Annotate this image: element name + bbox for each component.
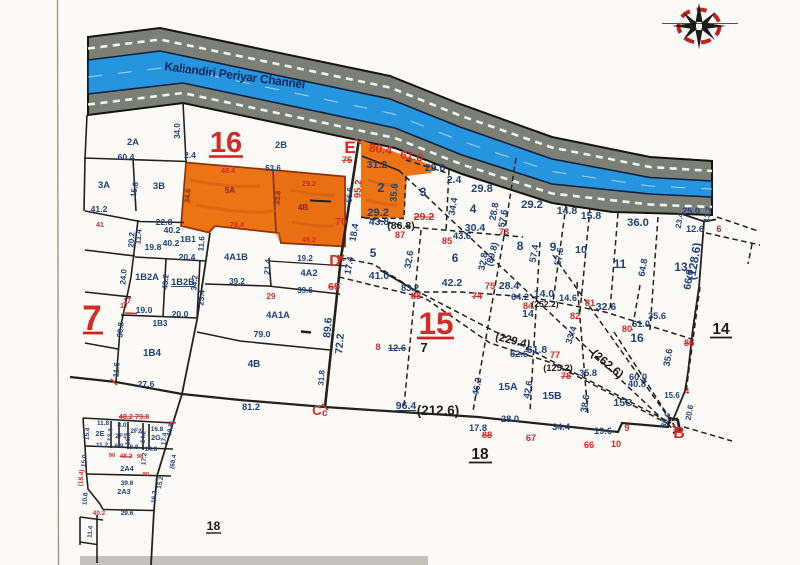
svg-text:31.8: 31.8 — [316, 369, 326, 386]
svg-text:2: 2 — [377, 180, 384, 195]
svg-text:5A: 5A — [225, 186, 235, 195]
svg-text:75: 75 — [342, 155, 352, 165]
svg-text:3: 3 — [420, 185, 427, 199]
svg-text:2A: 2A — [127, 137, 139, 147]
svg-text:39.6: 39.6 — [121, 480, 134, 487]
svg-text:29.6: 29.6 — [121, 510, 134, 517]
svg-text:53.6: 53.6 — [265, 164, 281, 173]
svg-text:16: 16 — [210, 127, 242, 159]
svg-text:29.6: 29.6 — [425, 162, 446, 174]
svg-text:34.4: 34.4 — [552, 422, 571, 432]
svg-text:61.8: 61.8 — [527, 344, 548, 356]
svg-text:15.4: 15.4 — [83, 427, 91, 440]
svg-text:88: 88 — [411, 291, 421, 301]
svg-text:48.4: 48.4 — [221, 166, 236, 175]
svg-text:6: 6 — [716, 224, 721, 234]
svg-text:85: 85 — [442, 236, 452, 246]
svg-text:11: 11 — [614, 257, 627, 271]
svg-text:30.8: 30.8 — [115, 321, 125, 338]
svg-text:14: 14 — [522, 308, 534, 320]
svg-text:88: 88 — [482, 430, 492, 440]
svg-text:19.2: 19.2 — [297, 254, 313, 263]
svg-text:43.2: 43.2 — [160, 273, 170, 290]
svg-text:2.4: 2.4 — [447, 174, 462, 186]
svg-text:13.4: 13.4 — [106, 428, 114, 441]
svg-text:85: 85 — [684, 338, 694, 348]
svg-text:35.8: 35.8 — [579, 368, 597, 378]
svg-text:78.4: 78.4 — [230, 220, 245, 229]
svg-text:2B: 2B — [275, 140, 287, 150]
svg-text:17: 17 — [123, 296, 131, 305]
svg-text:11.4: 11.4 — [86, 525, 94, 538]
svg-text:39.6: 39.6 — [297, 286, 313, 295]
svg-text:66: 66 — [584, 440, 594, 450]
svg-text:60.4: 60.4 — [118, 152, 135, 162]
svg-text:29: 29 — [267, 292, 276, 301]
svg-text:89.6: 89.6 — [321, 317, 335, 339]
svg-text:29.8: 29.8 — [471, 183, 493, 195]
svg-text:81.2: 81.2 — [242, 402, 260, 412]
svg-text:24.0: 24.0 — [118, 268, 128, 285]
svg-text:43.8: 43.8 — [369, 216, 390, 228]
svg-text:1B3: 1B3 — [153, 319, 168, 328]
svg-text:48.2: 48.2 — [120, 453, 133, 460]
svg-text:8: 8 — [375, 342, 380, 352]
svg-text:14: 14 — [712, 321, 730, 338]
svg-text:34.2: 34.2 — [189, 274, 199, 291]
svg-text:31.2: 31.2 — [367, 159, 388, 171]
svg-text:32.6: 32.6 — [596, 301, 617, 313]
svg-text:6: 6 — [452, 251, 459, 265]
svg-text:70: 70 — [335, 216, 347, 228]
svg-text:43.6: 43.6 — [453, 231, 471, 241]
svg-text:c: c — [322, 408, 328, 419]
svg-text:3B: 3B — [153, 181, 165, 191]
svg-text:2G: 2G — [151, 433, 161, 442]
svg-text:40.8: 40.8 — [628, 379, 646, 389]
svg-text:73: 73 — [499, 227, 509, 237]
svg-text:21.4: 21.4 — [262, 258, 272, 275]
svg-text:(212.6): (212.6) — [417, 403, 459, 418]
svg-text:(18.4): (18.4) — [77, 469, 85, 486]
svg-text:14.8: 14.8 — [557, 205, 578, 217]
svg-text:4: 4 — [470, 202, 477, 216]
svg-text:4A1A: 4A1A — [266, 310, 290, 320]
svg-text:14.8: 14.8 — [145, 446, 158, 453]
svg-text:9: 9 — [624, 423, 629, 433]
svg-text:79.0: 79.0 — [254, 329, 271, 339]
svg-text:15B: 15B — [542, 390, 562, 402]
svg-text:41: 41 — [96, 220, 104, 229]
svg-text:15.8: 15.8 — [581, 210, 602, 222]
svg-text:19.6: 19.6 — [594, 426, 612, 436]
svg-text:C: C — [312, 403, 322, 418]
svg-text:34.6: 34.6 — [182, 188, 192, 203]
svg-text:39.2: 39.2 — [229, 277, 245, 286]
svg-text:19.8: 19.8 — [145, 242, 162, 252]
svg-text:29.2: 29.2 — [414, 211, 435, 223]
svg-text:1B1: 1B1 — [180, 234, 196, 244]
svg-text:11.6: 11.6 — [111, 361, 121, 377]
svg-text:18: 18 — [471, 446, 489, 463]
svg-text:B: B — [673, 425, 685, 442]
svg-text:10: 10 — [611, 439, 621, 449]
svg-text:4A1B: 4A1B — [224, 252, 248, 262]
svg-text:20.4: 20.4 — [179, 252, 196, 262]
svg-text:10: 10 — [575, 244, 587, 256]
svg-text:77: 77 — [550, 350, 560, 360]
svg-text:82: 82 — [570, 311, 580, 321]
svg-text:11.2: 11.2 — [96, 442, 109, 449]
svg-text:96.4: 96.4 — [396, 400, 417, 412]
svg-text:15C: 15C — [613, 397, 633, 409]
svg-text:12.6: 12.6 — [686, 224, 704, 234]
svg-text:8: 8 — [517, 239, 524, 253]
svg-text:1B2A: 1B2A — [135, 272, 159, 282]
svg-text:17.2: 17.2 — [140, 452, 148, 465]
svg-text:28.4: 28.4 — [499, 280, 520, 292]
svg-text:2A4: 2A4 — [120, 464, 134, 473]
svg-text:16: 16 — [630, 331, 644, 345]
svg-text:46.2: 46.2 — [302, 235, 316, 244]
svg-text:87: 87 — [395, 230, 405, 240]
svg-text:48.2 79.8: 48.2 79.8 — [119, 412, 149, 421]
svg-text:90: 90 — [109, 453, 116, 459]
svg-text:1B4: 1B4 — [143, 348, 162, 359]
svg-text:72.2: 72.2 — [333, 333, 347, 355]
svg-text:8.8: 8.8 — [130, 444, 139, 451]
svg-text:29.2: 29.2 — [521, 199, 543, 211]
svg-text:33.6: 33.6 — [272, 190, 282, 205]
svg-text:14.2: 14.2 — [139, 430, 147, 443]
svg-text:11.8: 11.8 — [97, 420, 110, 427]
svg-text:8.0: 8.0 — [118, 422, 127, 429]
svg-text:15.6: 15.6 — [664, 391, 680, 400]
svg-text:40.2: 40.2 — [93, 510, 106, 517]
svg-text:80: 80 — [143, 472, 150, 478]
svg-text:42.2: 42.2 — [442, 277, 463, 289]
svg-text:36.0: 36.0 — [627, 217, 649, 229]
svg-text:40.2: 40.2 — [164, 225, 181, 235]
svg-text:16.8: 16.8 — [151, 426, 164, 433]
svg-text:D: D — [329, 253, 341, 270]
svg-text:34.0: 34.0 — [173, 123, 182, 139]
svg-text:35.6: 35.6 — [648, 311, 666, 321]
svg-text:28.0: 28.0 — [501, 414, 519, 424]
svg-text:20.0: 20.0 — [172, 309, 189, 319]
svg-text:65: 65 — [328, 281, 340, 293]
svg-text:4A2: 4A2 — [300, 268, 317, 278]
svg-text:4B: 4B — [298, 203, 308, 212]
svg-text:19.0: 19.0 — [136, 305, 153, 315]
svg-text:27.6: 27.6 — [138, 379, 155, 389]
svg-text:18: 18 — [207, 519, 221, 533]
svg-text:6.8: 6.8 — [115, 443, 124, 450]
svg-text:52.6: 52.6 — [510, 349, 528, 359]
svg-text:10.8: 10.8 — [81, 492, 89, 505]
svg-text:11.6: 11.6 — [196, 235, 206, 251]
svg-text:12.6: 12.6 — [388, 343, 406, 353]
svg-text:16.2: 16.2 — [150, 490, 158, 503]
svg-text:5: 5 — [370, 246, 377, 260]
svg-text:40.2: 40.2 — [163, 238, 180, 248]
svg-text:4B: 4B — [248, 359, 261, 370]
svg-text:23.4: 23.4 — [196, 289, 206, 306]
svg-text:15: 15 — [418, 305, 453, 341]
svg-text:2.4: 2.4 — [184, 150, 196, 160]
svg-text:75: 75 — [485, 281, 495, 291]
svg-text:2A3: 2A3 — [117, 487, 130, 496]
svg-text:29.2: 29.2 — [302, 179, 316, 188]
svg-text:20.2: 20.2 — [126, 231, 136, 248]
svg-text:(252.2): (252.2) — [531, 299, 558, 309]
svg-text:35.6: 35.6 — [388, 183, 401, 202]
svg-text:7: 7 — [420, 340, 427, 355]
svg-text:78: 78 — [561, 371, 571, 381]
svg-text:41.2: 41.2 — [91, 204, 108, 214]
svg-text:74: 74 — [472, 291, 483, 301]
svg-text:14.6: 14.6 — [559, 293, 577, 303]
svg-text:67: 67 — [526, 433, 536, 443]
svg-text:41.0: 41.0 — [369, 270, 390, 282]
svg-text:81: 81 — [585, 298, 595, 308]
svg-text:15A: 15A — [498, 381, 518, 393]
svg-text:3A: 3A — [98, 180, 110, 190]
svg-text:15.0: 15.0 — [80, 454, 88, 467]
svg-text:4: 4 — [685, 387, 690, 396]
svg-text:55.6: 55.6 — [345, 186, 355, 202]
svg-text:2E: 2E — [96, 429, 105, 438]
